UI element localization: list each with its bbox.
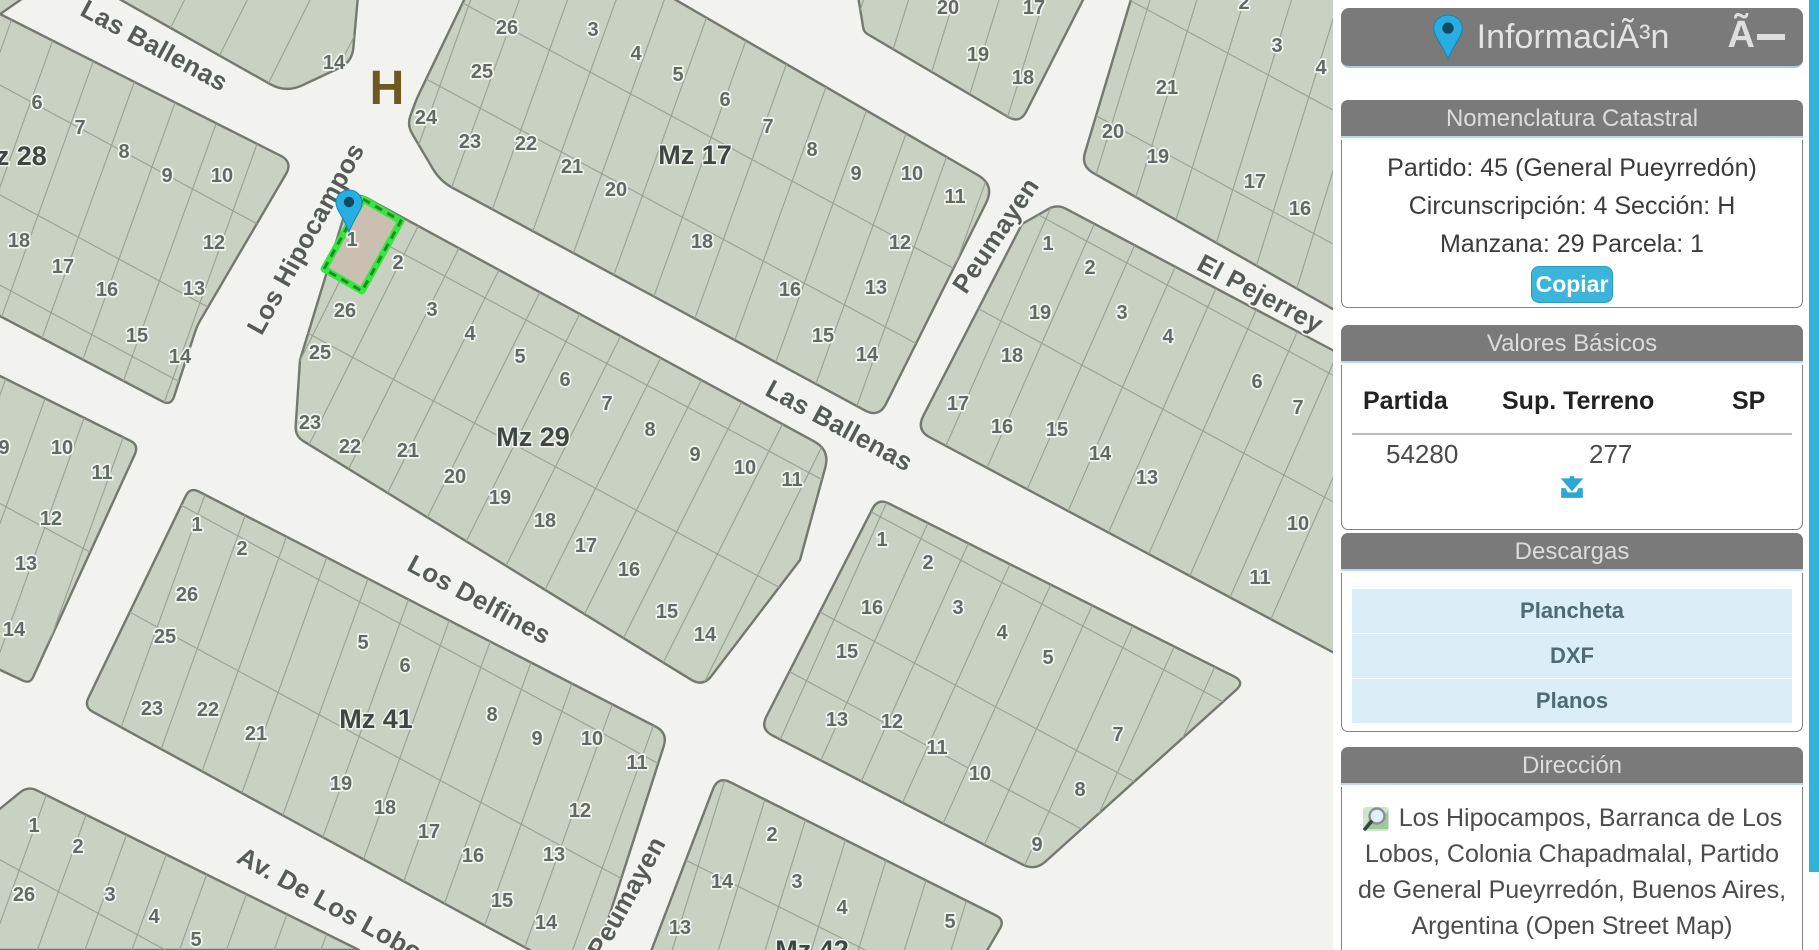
svg-text:8: 8 xyxy=(1074,779,1085,801)
svg-text:19: 19 xyxy=(489,487,511,509)
svg-text:6: 6 xyxy=(719,89,730,111)
svg-text:10: 10 xyxy=(1287,513,1309,535)
svg-text:2: 2 xyxy=(236,538,247,560)
svg-text:11: 11 xyxy=(944,186,965,208)
svg-text:7: 7 xyxy=(1292,397,1303,419)
svg-text:1: 1 xyxy=(876,529,887,551)
svg-text:13: 13 xyxy=(15,553,37,575)
svg-text:21: 21 xyxy=(561,156,583,178)
svg-text:4: 4 xyxy=(630,43,642,65)
svg-text:1: 1 xyxy=(346,229,357,251)
svg-text:20: 20 xyxy=(605,179,627,201)
svg-text:10: 10 xyxy=(734,457,756,479)
svg-text:9: 9 xyxy=(531,728,542,750)
svg-text:13: 13 xyxy=(826,709,848,731)
svg-text:10: 10 xyxy=(51,437,73,459)
svg-text:17: 17 xyxy=(1244,171,1266,193)
svg-text:14: 14 xyxy=(169,346,192,368)
svg-text:2: 2 xyxy=(392,252,403,274)
svg-text:17: 17 xyxy=(947,393,969,415)
svg-text:12: 12 xyxy=(569,800,591,822)
svg-text:18: 18 xyxy=(8,230,30,252)
svg-text:14: 14 xyxy=(711,871,734,893)
svg-text:1: 1 xyxy=(28,815,39,837)
svg-text:6: 6 xyxy=(1251,371,1262,393)
svg-text:19: 19 xyxy=(967,44,989,66)
svg-text:2: 2 xyxy=(1238,0,1249,14)
svg-text:2: 2 xyxy=(72,836,83,858)
svg-text:18: 18 xyxy=(534,510,556,532)
svg-text:23: 23 xyxy=(141,698,163,720)
svg-text:10: 10 xyxy=(211,165,233,187)
svg-text:16: 16 xyxy=(779,279,801,301)
svg-text:14: 14 xyxy=(694,624,717,646)
svg-text:20: 20 xyxy=(937,0,959,19)
svg-text:3: 3 xyxy=(952,597,963,619)
svg-text:3: 3 xyxy=(791,871,802,893)
svg-text:14: 14 xyxy=(323,52,346,74)
svg-text:17: 17 xyxy=(52,256,74,278)
svg-text:16: 16 xyxy=(618,559,640,581)
svg-text:22: 22 xyxy=(197,699,219,721)
svg-text:5: 5 xyxy=(1042,647,1053,669)
svg-text:2: 2 xyxy=(1084,257,1095,279)
svg-text:22: 22 xyxy=(515,133,537,155)
svg-text:4: 4 xyxy=(464,323,476,345)
svg-text:15: 15 xyxy=(1046,419,1068,441)
svg-text:4: 4 xyxy=(1315,57,1327,79)
svg-text:7: 7 xyxy=(74,117,85,139)
svg-text:3: 3 xyxy=(426,299,437,321)
svg-text:3: 3 xyxy=(1271,35,1282,57)
svg-text:H: H xyxy=(370,62,405,115)
svg-text:14: 14 xyxy=(535,912,558,934)
svg-text:1: 1 xyxy=(1042,233,1053,255)
svg-text:17: 17 xyxy=(575,535,597,557)
svg-text:8: 8 xyxy=(486,704,497,726)
svg-text:5: 5 xyxy=(672,64,683,86)
svg-text:25: 25 xyxy=(309,342,331,364)
svg-text:7: 7 xyxy=(601,393,612,415)
svg-text:13: 13 xyxy=(865,277,887,299)
svg-text:11: 11 xyxy=(781,469,802,491)
svg-text:23: 23 xyxy=(459,131,481,153)
svg-text:4: 4 xyxy=(1162,326,1174,348)
svg-text:9: 9 xyxy=(850,163,861,185)
svg-text:21: 21 xyxy=(245,723,267,745)
svg-text:5: 5 xyxy=(190,929,201,950)
svg-text:3: 3 xyxy=(1116,302,1127,324)
svg-text:9: 9 xyxy=(689,444,700,466)
svg-text:18: 18 xyxy=(691,231,713,253)
svg-text:26: 26 xyxy=(496,17,518,39)
svg-text:9: 9 xyxy=(161,165,172,187)
svg-text:22: 22 xyxy=(339,436,361,458)
svg-text:15: 15 xyxy=(491,890,513,912)
svg-text:4: 4 xyxy=(836,897,848,919)
svg-text:8: 8 xyxy=(806,139,817,161)
svg-text:15: 15 xyxy=(126,325,148,347)
svg-text:12: 12 xyxy=(40,508,62,530)
svg-text:21: 21 xyxy=(397,440,419,462)
svg-text:26: 26 xyxy=(13,884,35,906)
svg-text:14: 14 xyxy=(856,344,879,366)
svg-text:19: 19 xyxy=(1147,146,1169,168)
svg-text:20: 20 xyxy=(444,466,466,488)
svg-text:11: 11 xyxy=(926,737,947,759)
svg-text:12: 12 xyxy=(881,711,903,733)
svg-text:13: 13 xyxy=(543,844,565,866)
svg-text:17: 17 xyxy=(1023,0,1045,19)
svg-text:16: 16 xyxy=(96,279,118,301)
svg-text:17: 17 xyxy=(418,821,440,843)
svg-text:4: 4 xyxy=(996,622,1008,644)
svg-text:18: 18 xyxy=(1001,345,1023,367)
svg-text:13: 13 xyxy=(183,278,205,300)
svg-text:Mz 42: Mz 42 xyxy=(775,935,849,950)
svg-text:3: 3 xyxy=(104,884,115,906)
svg-text:Mz 28: Mz 28 xyxy=(0,141,47,171)
svg-text:11: 11 xyxy=(626,752,647,774)
svg-text:15: 15 xyxy=(656,601,678,623)
svg-text:18: 18 xyxy=(374,797,396,819)
svg-text:2: 2 xyxy=(766,824,777,846)
svg-text:8: 8 xyxy=(644,419,655,441)
svg-text:15: 15 xyxy=(836,641,858,663)
svg-text:4: 4 xyxy=(148,906,160,928)
svg-text:25: 25 xyxy=(471,61,493,83)
svg-text:Mz 41: Mz 41 xyxy=(339,704,413,734)
svg-text:26: 26 xyxy=(176,584,198,606)
svg-text:12: 12 xyxy=(203,232,225,254)
svg-text:10: 10 xyxy=(901,163,923,185)
svg-text:9: 9 xyxy=(1031,834,1042,856)
svg-text:2: 2 xyxy=(922,552,933,574)
svg-text:1: 1 xyxy=(191,514,202,536)
svg-text:3: 3 xyxy=(587,19,598,41)
svg-text:10: 10 xyxy=(581,728,603,750)
svg-text:15: 15 xyxy=(812,325,834,347)
svg-text:18: 18 xyxy=(1012,67,1034,89)
svg-text:21: 21 xyxy=(1156,77,1178,99)
svg-text:9: 9 xyxy=(0,437,10,459)
svg-text:14: 14 xyxy=(1089,443,1112,465)
svg-text:7: 7 xyxy=(1112,724,1123,746)
svg-text:5: 5 xyxy=(514,346,525,368)
svg-text:12: 12 xyxy=(889,232,911,254)
svg-text:8: 8 xyxy=(118,141,129,163)
svg-text:16: 16 xyxy=(991,416,1013,438)
svg-text:24: 24 xyxy=(415,107,438,129)
svg-text:20: 20 xyxy=(1102,121,1124,143)
svg-text:6: 6 xyxy=(559,369,570,391)
svg-text:7: 7 xyxy=(762,116,773,138)
svg-text:16: 16 xyxy=(462,845,484,867)
svg-text:23: 23 xyxy=(299,412,321,434)
svg-text:11: 11 xyxy=(91,462,112,484)
svg-text:5: 5 xyxy=(357,632,368,654)
svg-text:6: 6 xyxy=(31,92,42,114)
svg-text:Mz 29: Mz 29 xyxy=(496,422,570,452)
svg-text:5: 5 xyxy=(944,911,955,933)
svg-text:13: 13 xyxy=(1136,467,1158,489)
svg-text:11: 11 xyxy=(1249,567,1270,589)
svg-text:25: 25 xyxy=(154,626,176,648)
svg-text:26: 26 xyxy=(334,300,356,322)
svg-text:6: 6 xyxy=(399,655,410,677)
svg-text:16: 16 xyxy=(1289,198,1311,220)
svg-text:Mz 17: Mz 17 xyxy=(658,140,732,170)
svg-text:10: 10 xyxy=(969,763,991,785)
svg-text:19: 19 xyxy=(330,773,352,795)
svg-text:16: 16 xyxy=(861,597,883,619)
svg-text:13: 13 xyxy=(669,917,691,939)
svg-text:19: 19 xyxy=(1029,302,1051,324)
svg-text:14: 14 xyxy=(3,619,26,641)
